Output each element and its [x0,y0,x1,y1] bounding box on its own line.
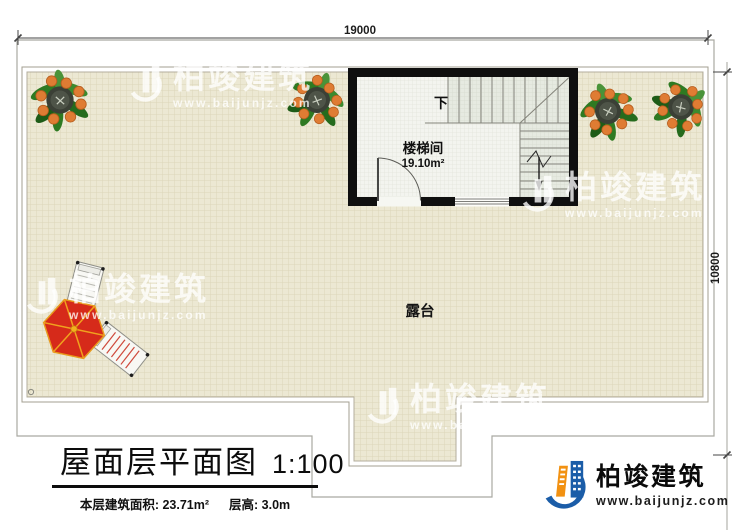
plan-height-info: 层高: 3.0m [229,494,290,513]
plan-scale: 1:100 [272,449,345,480]
dimension-right-label: 10800 [710,252,722,284]
floor-plan-page: 19000 10800 露台 [0,0,750,530]
stair-room: 下 楼梯间 19.10m² [348,68,578,207]
stair-direction-label: 下 [434,95,448,111]
terrace-label: 露台 [406,302,435,320]
company-logo: 柏竣建筑 www.baijunjz.com [536,458,729,514]
plan-title: 屋面层平面图 [60,437,258,482]
logo-brand: 柏竣建筑 [596,465,729,490]
title-block: 屋面层平面图 1:100 本层建筑面积: 23.71m² 层高: 3.0m [52,437,318,513]
stair-flight-right [520,123,569,197]
title-underline [52,485,318,488]
logo-url: www.baijunjz.com [596,494,729,508]
dimension-top-label: 19000 [344,25,376,37]
stair-area-label: 19.10m² [402,158,445,170]
stair-room-label: 楼梯间 [403,140,444,156]
plan-area-info: 本层建筑面积: 23.71m² [80,494,209,513]
logo-building-icon [536,458,588,514]
louver-vent [455,197,509,207]
door-opening [377,197,421,207]
stair-flight-upper [448,77,569,123]
